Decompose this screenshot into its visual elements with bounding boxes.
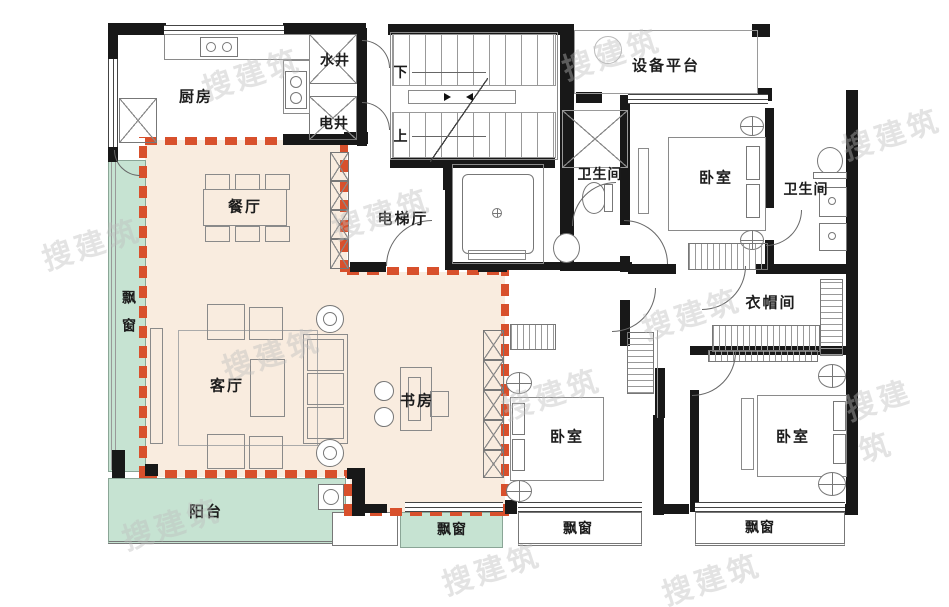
toilet-tank (813, 172, 847, 179)
label-electric-shaft: 电井 (319, 117, 349, 131)
sink-basin-icon (206, 42, 216, 52)
label-bay-window-middle: 飘窗 (563, 522, 593, 536)
label-stair-down: 下 (394, 66, 409, 80)
elevator-center-icon (492, 208, 502, 218)
door-arc (362, 102, 390, 130)
label-balcony: 阳台 (189, 505, 223, 520)
wall-segment (765, 108, 774, 208)
casement-window (483, 360, 504, 390)
wall-segment (352, 468, 365, 516)
burner-icon (290, 92, 302, 104)
study-chair (374, 381, 394, 401)
bay-rail-line (115, 162, 116, 470)
dining-chair (205, 174, 230, 190)
closet-rack (688, 243, 768, 270)
closet-rack (712, 325, 820, 352)
pillow (746, 184, 760, 218)
gift-boundary-dash (139, 137, 147, 478)
dining-chair (235, 226, 260, 242)
nightstand (506, 480, 532, 502)
sink-basin-icon (828, 232, 836, 240)
stair-down-line (412, 72, 486, 73)
stair-arrow-icon (444, 93, 451, 101)
casement-window (330, 239, 349, 269)
label-living-room: 客厅 (210, 379, 244, 394)
washing-machine-drum-icon (323, 489, 339, 505)
pillow (746, 146, 760, 180)
pillow (512, 403, 525, 435)
label-bathroom-top: 卫生间 (578, 168, 623, 182)
dining-chair (265, 174, 290, 190)
door-arc (702, 266, 746, 310)
plant-icon (323, 312, 337, 326)
label-elevator-hall: 电梯厅 (377, 212, 428, 227)
living-rug (178, 330, 318, 446)
window (518, 502, 642, 512)
window (108, 59, 118, 147)
study-chair (374, 407, 394, 427)
closet-rack (510, 324, 556, 350)
nightstand (740, 116, 764, 136)
nightstand (506, 372, 532, 394)
stair-break-line (430, 78, 488, 162)
plant-icon (323, 446, 337, 460)
casement-window (483, 450, 504, 478)
wall-segment (628, 264, 676, 274)
gift-boundary-dash (145, 470, 350, 478)
elevator-sill (468, 250, 526, 260)
wall-segment (108, 33, 118, 61)
shower-enclosure (562, 110, 628, 168)
wall-segment (112, 450, 125, 478)
window (405, 502, 503, 512)
casement-window (483, 390, 504, 420)
partition-line (657, 330, 658, 418)
door-arc (612, 288, 656, 332)
nightstand (818, 472, 846, 496)
wall-segment (350, 262, 386, 272)
wall-segment (653, 415, 664, 515)
window (695, 502, 845, 512)
platform-fan-icon (594, 36, 622, 64)
door-arc (692, 352, 736, 396)
label-bay-window-right: 飘窗 (745, 521, 775, 535)
coffee-table (250, 359, 285, 417)
tv-console (741, 398, 754, 470)
toilet-icon (817, 147, 843, 175)
label-bedroom-middle: 卧室 (550, 430, 584, 445)
label-dining-room: 餐厅 (228, 200, 262, 215)
stair-up-line (412, 136, 486, 137)
pillow (833, 434, 846, 464)
label-bay-window-green: 飘窗 (437, 523, 467, 537)
dining-chair (205, 226, 230, 242)
armchair (249, 436, 283, 469)
label-cloakroom: 衣帽间 (745, 296, 796, 311)
wall-segment (845, 504, 858, 515)
kitchen-cabinet (119, 98, 157, 143)
wall-segment (365, 504, 387, 513)
bay-window-box (332, 512, 398, 546)
label-bay-window-left: 飘窗 (121, 290, 135, 346)
label-bedroom-top-right: 卧室 (699, 171, 733, 186)
sofa-cushion (307, 373, 344, 405)
casement-window (483, 420, 504, 450)
door-arc (766, 210, 802, 246)
label-equipment-platform: 设备平台 (632, 59, 700, 74)
label-bedroom-right: 卧室 (776, 430, 810, 445)
casement-window (483, 330, 504, 360)
closet-rack (627, 332, 654, 394)
armchair (207, 304, 245, 340)
label-stair-up: 上 (394, 130, 409, 144)
casement-window (330, 181, 349, 210)
label-water-shaft: 水井 (320, 54, 350, 68)
tv-console (638, 148, 649, 214)
pillow (833, 401, 846, 431)
sink-icon (553, 233, 580, 263)
armchair (207, 434, 245, 469)
dining-chair (265, 226, 290, 242)
wall-segment (145, 464, 158, 476)
wall-segment (505, 500, 517, 514)
tv-console (150, 328, 163, 444)
dining-chair (235, 174, 260, 190)
sofa-cushion (307, 407, 344, 439)
watermark-text: 搜建筑 (656, 540, 767, 607)
floor-plan: 厨房 水井 电井 下 上 设备平台 电梯厅 卫生间 卧室 卫生间 餐厅 衣帽间 … (0, 0, 949, 607)
wall-segment (846, 90, 858, 515)
wall-segment (690, 390, 699, 512)
armchair (249, 307, 283, 340)
stair-arrow-icon (466, 93, 473, 101)
sink-basin-icon (828, 197, 836, 205)
casement-window (330, 210, 349, 239)
casement-window (330, 152, 349, 181)
label-study: 书房 (400, 394, 434, 409)
door-arc (362, 40, 390, 68)
door-arc (624, 220, 668, 264)
nightstand (818, 364, 846, 388)
door-arc (572, 182, 616, 226)
bay-rail-line (111, 162, 112, 470)
label-bathroom-right: 卫生间 (784, 183, 829, 197)
sink-basin-icon (222, 42, 232, 52)
window (628, 94, 768, 104)
label-kitchen: 厨房 (179, 90, 213, 105)
closet-rack (820, 279, 843, 356)
pillow (512, 439, 525, 471)
zone-balcony (108, 478, 346, 544)
sofa-cushion (307, 339, 344, 371)
wall-segment (663, 504, 689, 514)
burner-icon (290, 76, 302, 88)
